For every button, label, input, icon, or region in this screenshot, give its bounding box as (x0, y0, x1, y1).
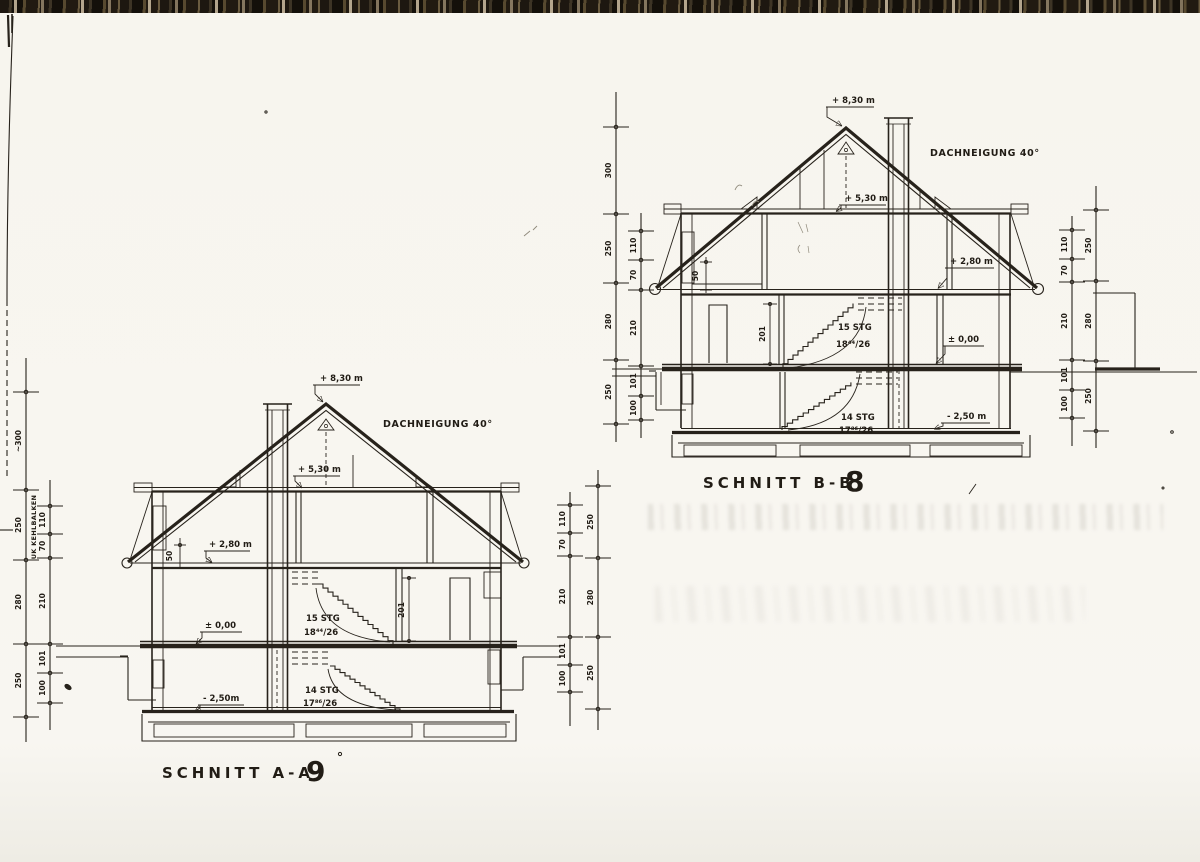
ridge-level: + 8,30 m (832, 96, 875, 106)
stairs-upper (783, 298, 902, 368)
stair-count-lower: 14 STG (305, 686, 339, 696)
chain-dim-value: 100 (1060, 396, 1069, 412)
chain-dim-value: 250 (586, 665, 595, 681)
section-title: SCHNITT B-B (703, 474, 855, 492)
dim-chain-bb-right-outer: 250280250 (1083, 186, 1109, 448)
pencil-mark (533, 226, 537, 230)
walls (152, 491, 501, 710)
site-lines (612, 293, 1197, 410)
stair-ratio-lower: 17⁸⁶/26 (303, 699, 337, 709)
chain-dim-value: 210 (1060, 313, 1069, 329)
chain-dim-value: 280 (586, 590, 595, 606)
chain-dim-value: 70 (558, 539, 567, 549)
chain-dim-value: 250 (604, 384, 613, 400)
dim-chain-bb-left-inner: 11070210101100 (628, 213, 654, 438)
chain-dim-value: 210 (629, 320, 638, 336)
section-number: 9 (306, 755, 325, 788)
knee-dim: 50 (691, 271, 700, 281)
chain-dim-value: 101 (38, 651, 47, 667)
section-title: SCHNITT A-A (162, 764, 314, 782)
ink-speck (1171, 431, 1174, 434)
basement-level: - 2,50 m (947, 412, 986, 422)
scanned-blueprint-page: ~300250280250110702101011001107021010110… (0, 0, 1200, 862)
walls (681, 213, 1010, 428)
knee-dim: 50 (165, 551, 174, 561)
blueprint-drawing: ~300250280250110702101011001107021010110… (0, 0, 1200, 862)
dim-chain-aa-right-inner: 11070210101100 (557, 492, 583, 726)
room-height-dim: 201 (397, 602, 406, 618)
chain-dim-value: 280 (14, 594, 23, 610)
pen-mark (8, 15, 9, 47)
chain-dim-value: 280 (1084, 313, 1093, 329)
stair-count-lower: 14 STG (841, 413, 875, 423)
stair-count-upper: 15 STG (838, 323, 872, 333)
ground-window (484, 572, 501, 598)
section-b-b: 50 201 + 8,30 m DACHNEIGUNG 40° + 5,30 m… (612, 96, 1197, 498)
dim-chain-bb-right-inner: 11070210101100 (1059, 216, 1085, 446)
dim-chain-aa-left-inner: 11070210101100 (37, 480, 63, 730)
attic-floor (134, 483, 519, 492)
chain-dim-value: ~300 (14, 430, 23, 452)
attic-level: + 5,30 m (298, 465, 341, 475)
ink-speck (969, 484, 976, 494)
ground-door (709, 305, 727, 363)
stairs-lower (782, 372, 898, 430)
chain-dim-value: 250 (586, 514, 595, 530)
collar-beam-note: UK KEHLBALKEN (30, 495, 38, 560)
upper-level: + 2,80 m (209, 540, 252, 550)
small-dimensions: 50 201 (691, 257, 777, 366)
stair-ratio-lower: 17⁸⁶/26 (839, 426, 873, 436)
stair-count-upper: 15 STG (306, 614, 340, 624)
attic-level: + 5,30 m (845, 194, 888, 204)
chain-dim-value: 101 (1060, 367, 1069, 383)
chain-dim-value: 250 (1084, 238, 1093, 254)
chain-dim-value: 250 (14, 673, 23, 689)
chain-dim-value: 300 (604, 163, 613, 179)
roof-pitch-label: DACHNEIGUNG 40° (930, 148, 1040, 159)
chain-dim-value: 110 (558, 511, 567, 527)
pencil-mark (798, 222, 808, 233)
upper-window (153, 506, 166, 550)
small-dimensions: 50 201 (165, 538, 416, 643)
ground-level: ± 0,00 (205, 621, 236, 631)
pencil-mark (524, 231, 530, 236)
stair-ratio-upper: 18⁴⁴/26 (304, 628, 338, 638)
dim-chain-bb-left-outer: 300250280250 (603, 92, 629, 442)
chain-dim-value: 110 (629, 238, 638, 254)
pencil-mark (735, 185, 742, 190)
chain-dim-value: 100 (558, 671, 567, 687)
ink-speck (265, 111, 267, 113)
ink-speck (1162, 487, 1164, 489)
stair-ratio-upper: 18⁴⁴/26 (836, 340, 870, 350)
foundation (142, 714, 516, 741)
chain-dim-value: 250 (604, 241, 613, 257)
chain-dim-value: 101 (629, 373, 638, 389)
chain-dim-value: 100 (38, 680, 47, 696)
upper-level: + 2,80 m (950, 257, 993, 267)
room-height-dim: 201 (758, 326, 767, 342)
paper-fold-line (7, 16, 13, 300)
foundation (672, 435, 1030, 457)
chain-dim-value: 70 (629, 270, 638, 280)
roof-pitch-label: DACHNEIGUNG 40° (383, 419, 493, 430)
ink-smudge (63, 683, 72, 692)
dim-chain-aa-right-outer: 250280250 (585, 470, 611, 730)
chain-dim-value: 70 (38, 541, 47, 551)
chain-dim-value: 250 (1084, 388, 1093, 404)
chain-dim-value: 210 (38, 593, 47, 609)
basement-window (153, 660, 164, 688)
ground-level: ± 0,00 (948, 335, 979, 345)
basement-window (682, 374, 693, 404)
chain-dim-value: 110 (1060, 237, 1069, 253)
chain-dim-value: 110 (38, 512, 47, 528)
ink-speck (338, 752, 341, 755)
chain-dim-value: 100 (629, 400, 638, 416)
ground-door (450, 578, 470, 640)
chain-dim-value: 250 (14, 517, 23, 533)
chain-dim-value: 210 (558, 589, 567, 605)
section-number: 8 (845, 465, 864, 498)
section-a-a: 50 201 + 8,30 m DACHNEIGUNG 40° + 5,30 m… (56, 374, 561, 788)
purlin (416, 476, 432, 487)
purlin (220, 476, 236, 487)
chain-dim-value: 280 (604, 314, 613, 330)
chain-dim-value: 70 (1060, 265, 1069, 275)
pencil-mark (798, 245, 809, 253)
ridge-level: + 8,30 m (320, 374, 363, 384)
ridge-gusset (838, 142, 854, 154)
basement-level: - 2,50m (203, 694, 239, 704)
level-labels: + 8,30 m DACHNEIGUNG 40° + 5,30 m + 2,80… (826, 96, 1040, 436)
